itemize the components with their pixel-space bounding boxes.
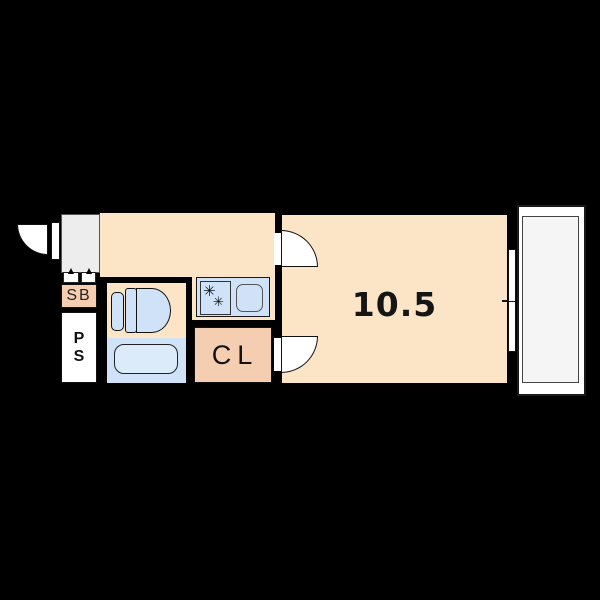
toilet-icon	[111, 292, 124, 331]
hallway-area	[100, 213, 275, 277]
stove-top: ✳ ✳	[200, 281, 231, 315]
step-marker	[68, 268, 74, 274]
sliding-window-pane	[508, 249, 516, 302]
pipe-space-label: S	[74, 348, 85, 366]
main-room: 10.5	[282, 215, 507, 383]
window-junction-mark	[502, 300, 509, 302]
pipe-space-box: P S	[61, 312, 97, 383]
shoe-box: SB	[61, 284, 97, 308]
floor-plan: ✳ ✳ SB P S CL 10.5	[0, 0, 600, 600]
step-marker	[86, 268, 92, 274]
pipe-space-label: P	[74, 330, 85, 348]
bathtub-icon	[114, 344, 178, 374]
entrance-door-leaf	[51, 222, 60, 260]
kitchen-sink-icon	[236, 284, 263, 312]
shoe-box-label: SB	[66, 287, 91, 305]
burner-icon: ✳	[213, 295, 224, 310]
main-room-size-label: 10.5	[352, 285, 437, 324]
kitchen-counter: ✳ ✳	[196, 277, 270, 317]
entryway-area	[61, 214, 100, 273]
closet-box: CL	[194, 327, 272, 383]
entrance-door-swing-icon	[17, 224, 48, 255]
sliding-window-pane	[508, 301, 516, 352]
closet-label: CL	[212, 340, 259, 371]
balcony-floor	[522, 216, 579, 383]
balcony	[517, 205, 586, 396]
